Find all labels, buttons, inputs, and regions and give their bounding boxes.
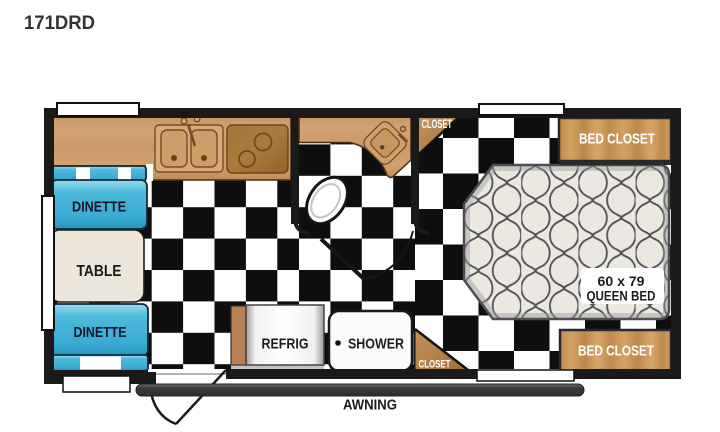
svg-text:DINETTE: DINETTE [72,199,126,216]
svg-text:CLOSET: CLOSET [422,119,453,131]
svg-text:BED CLOSET: BED CLOSET [579,131,655,148]
svg-text:QUEEN BED: QUEEN BED [587,288,656,304]
svg-text:DINETTE: DINETTE [74,324,127,341]
svg-text:CLOSET: CLOSET [419,359,451,371]
svg-text:SHOWER: SHOWER [348,336,404,353]
svg-text:TABLE: TABLE [77,263,122,280]
svg-text:BED CLOSET: BED CLOSET [578,343,654,360]
svg-text:AWNING: AWNING [343,398,397,414]
svg-text:171DRD: 171DRD [24,13,95,34]
svg-text:REFRIG: REFRIG [262,336,309,353]
